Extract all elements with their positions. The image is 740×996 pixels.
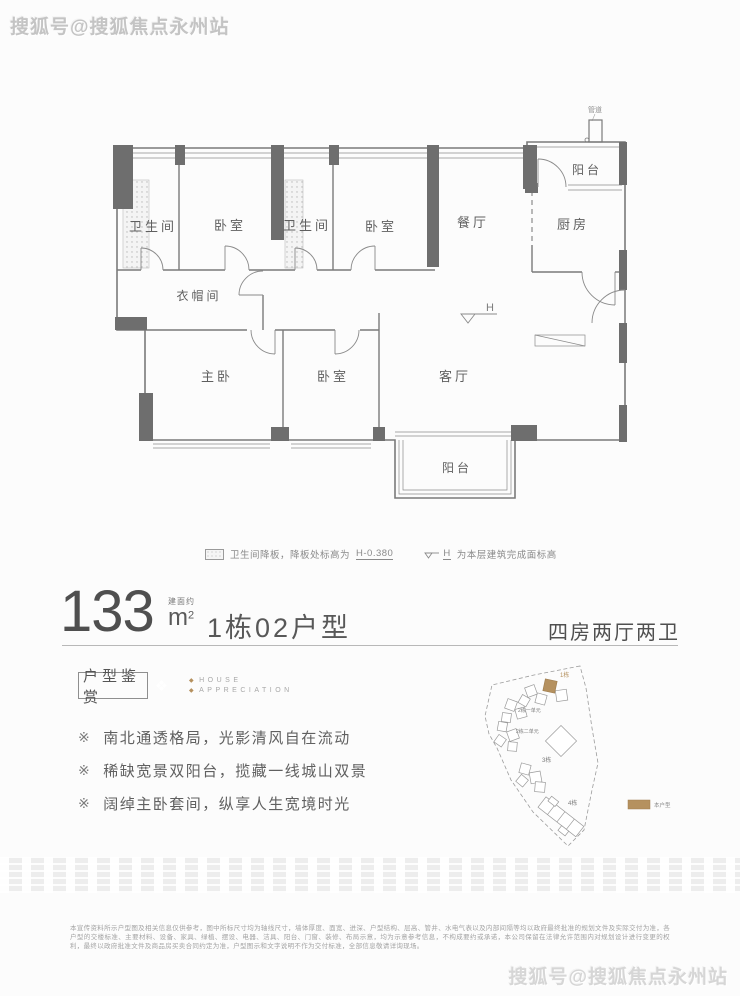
selling-point-2: ※ 稀缺宽景双阳台，揽藏一线城山双景	[78, 760, 367, 781]
title-divider	[62, 645, 678, 646]
ornament-icon: ❖	[148, 672, 175, 699]
bullet-marker: ※	[78, 762, 91, 779]
plan-legend: 卫生间降板，降板处标高为H-0.380 H 为本层建筑完成面标高	[205, 547, 557, 561]
outer-wall-outline	[115, 142, 625, 498]
level-note: 为本层建筑完成面标高	[457, 547, 557, 561]
site-label-tower2-unit1: 2栋一单元	[518, 707, 541, 714]
duct: 管道	[585, 105, 602, 142]
disclaimer-text: 本宣传资料所示户型图及相关信息仅供参考，图中所标尺寸均为轴线尺寸，墙体厚度、面宽…	[70, 924, 670, 951]
foyer-cabinet	[535, 335, 585, 346]
appreciation-subtitle: ◆HOUSE ◆APPRECIATION	[189, 672, 293, 699]
room-label-bathroom-2: 卫生间	[283, 218, 331, 233]
room-label-bedroom-2: 卧室	[365, 219, 397, 234]
site-buildings	[494, 679, 586, 842]
drop-hatch-icon	[205, 549, 224, 560]
bullet-text: 稀缺宽景双阳台，揽藏一线城山双景	[103, 760, 367, 781]
drop-note: 卫生间降板，降板处标高为	[230, 547, 350, 561]
site-label-tower3: 3栋	[542, 756, 551, 764]
room-label-master: 主卧	[201, 369, 233, 384]
site-building-this-unit	[543, 679, 557, 693]
kitchen-balcony-window	[568, 185, 622, 190]
bullet-text: 南北通透格局，光影清风自在流动	[103, 727, 351, 748]
layout-description: 四房两厅两卫	[0, 616, 680, 645]
siteplan-svg: 1栋 2栋一单元 2栋二单元 3栋 4栋 本户型	[480, 660, 680, 850]
room-label-balcony-bottom: 阳台	[442, 460, 472, 475]
selling-point-3: ※ 阔绰主卧套间，纵享人生宽境时光	[78, 793, 351, 814]
level-prefix: H	[443, 548, 450, 560]
site-label-tower1: 1栋	[560, 671, 569, 679]
duct-label: 管道	[588, 105, 602, 114]
room-label-bedroom-1: 卧室	[214, 218, 246, 233]
appreciation-header: 户型鉴赏 ❖ ◆HOUSE ◆APPRECIATION	[78, 672, 293, 699]
room-label-balcony-top: 阳台	[572, 162, 602, 177]
site-label-tower4: 4栋	[568, 799, 577, 807]
watermark-top-left: 搜狐号@搜狐焦点永州站	[10, 12, 230, 39]
decorative-band	[0, 857, 740, 893]
subtitle-line2: APPRECIATION	[199, 687, 293, 694]
room-label-kitchen: 厨房	[557, 217, 589, 232]
room-label-closet: 衣帽间	[176, 288, 221, 303]
room-label-dining: 餐厅	[457, 215, 489, 230]
bullet-text: 阔绰主卧套间，纵享人生宽境时光	[103, 793, 351, 814]
level-mark-icon	[423, 548, 441, 560]
level-mark-label: H	[486, 302, 494, 314]
bullet-marker: ※	[78, 795, 91, 812]
site-boundary	[485, 666, 598, 846]
appreciation-badge: 户型鉴赏	[78, 672, 148, 699]
selling-point-1: ※ 南北通透格局，光影清风自在流动	[78, 727, 351, 748]
site-legend-label: 本户型	[654, 801, 671, 809]
watermark-bottom-right: 搜狐号@搜狐焦点永州站	[508, 962, 728, 989]
site-label-tower2-unit2: 2栋二单元	[516, 728, 539, 735]
site-legend: 本户型	[628, 800, 671, 809]
bullet-marker: ※	[78, 729, 91, 746]
drop-value: H-0.380	[356, 548, 393, 560]
room-label-bedroom-3: 卧室	[317, 369, 349, 384]
room-label-living: 客厅	[439, 369, 471, 384]
floorplan-svg: 管道 H 卫生间 卧室 卫生间 卧室 餐厅 厨房 阳台 衣帽间 主卧 卧室 客厅…	[95, 95, 645, 525]
subtitle-line1: HOUSE	[199, 677, 241, 684]
level-mark: H	[461, 302, 497, 323]
door-arcs	[141, 159, 625, 354]
room-label-bathroom-1: 卫生间	[129, 219, 177, 234]
